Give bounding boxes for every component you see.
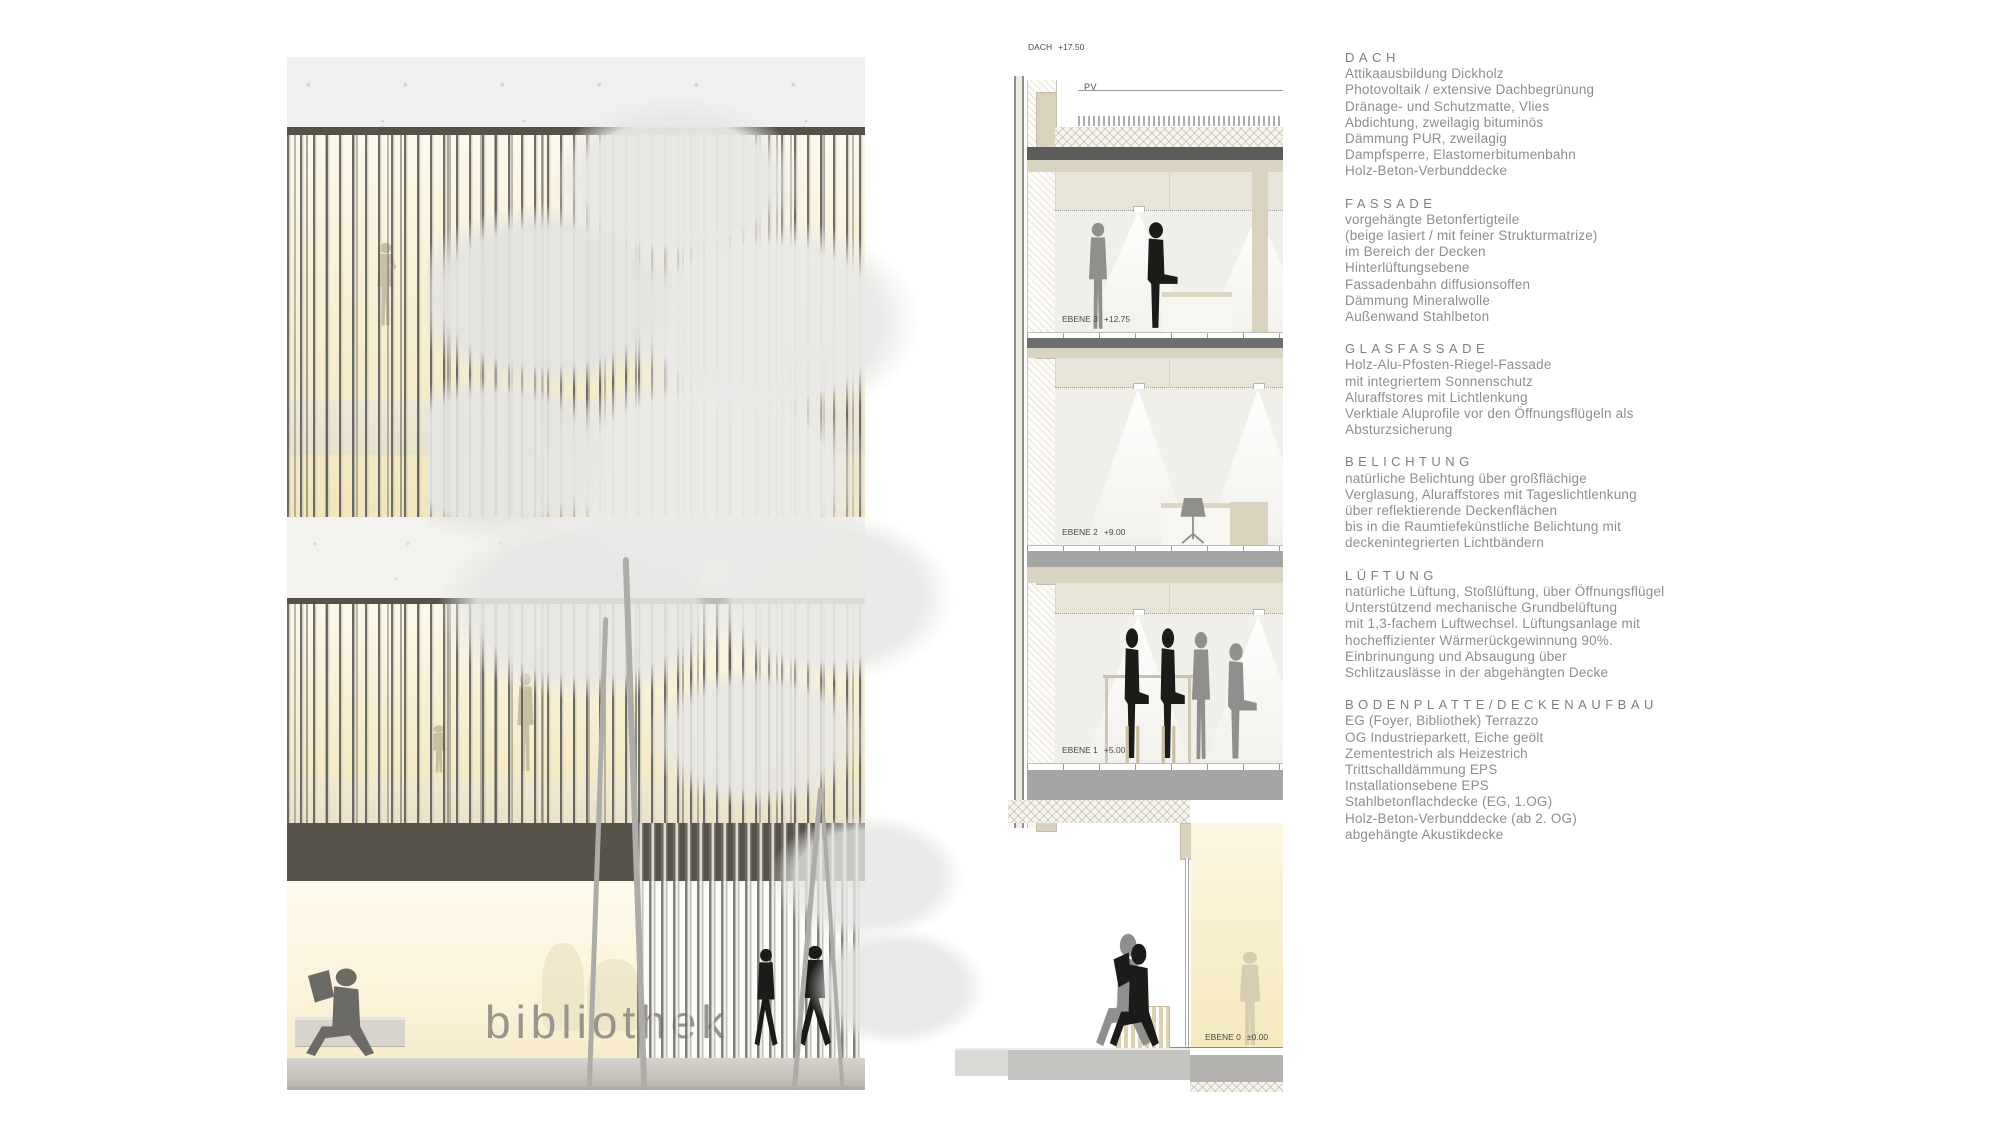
slab-timber-layer [1027,567,1283,583]
floor-finish-strip [1027,763,1283,770]
notes-section-title: BODENPLATTE/DECKENAUFBAU [1345,697,1775,713]
silhouette-figure-reading [1106,942,1164,1050]
foundation-hatch [1190,1082,1283,1092]
ground-slab [1008,1048,1190,1080]
section-room-level3 [1055,172,1283,332]
level-label-ebene1: EBENE 1+5.00 [1062,745,1125,755]
facade-elevation: bibliothek [287,57,865,1090]
room-wall-band [1055,172,1283,210]
level-label-ebene0: EBENE 0±0.00 [1205,1032,1268,1042]
ceiling-light-fixture [1253,609,1265,615]
elevation-upper-glazing [287,127,865,517]
silhouette-figure-walking [790,945,840,1051]
notes-section-title: DACH [1345,50,1775,66]
foundation-slab [1190,1055,1283,1082]
level-elevation: +17.50 [1058,42,1084,52]
roof-timber-layer [1027,160,1283,172]
elevation-concrete-band [287,517,865,598]
notes-section-lines: Holz-Alu-Pfosten-Riegel-Fassade mit inte… [1345,357,1775,438]
pv-leader-line [1078,90,1283,91]
soffit-insulation-hatch [1008,800,1190,823]
notes-section-belichtung: BELICHTUNG natürliche Belichtung über gr… [1345,454,1775,551]
level-label-ebene3: EBENE 3+12.75 [1062,314,1130,324]
cabinet [1230,502,1268,545]
level-name: EBENE 3 [1062,314,1098,324]
notes-section-lines: vorgehängte Betonfertigteile (beige lasi… [1345,212,1775,325]
ground-pavement [955,1048,1010,1076]
elevation-parapet-band [287,57,865,127]
floor-slab [1027,770,1283,800]
elevation-plinth [287,1058,865,1086]
level-label-dach: DACH+17.50 [1028,42,1084,52]
elevation-ground-shadow [287,1086,865,1090]
silhouette-figure-seated [1132,222,1180,332]
silhouette-figure-reading [301,967,381,1059]
ceiling-light-fixture [1133,383,1145,389]
elevation-slab-edge-strip [287,127,865,135]
section-room-level2 [1055,358,1283,545]
level-name: EBENE 1 [1062,745,1098,755]
elevation-slab-edge-strip [287,598,865,604]
notes-section-title: LÜFTUNG [1345,568,1775,584]
level-elevation: ±0.00 [1247,1032,1268,1042]
notes-section-lines: natürliche Lüftung, Stoßlüftung, über Öf… [1345,584,1775,681]
notes-section-fassade: FASSADE vorgehängte Betonfertigteile (be… [1345,196,1775,326]
notes-section-title: GLASFASSADE [1345,341,1775,357]
silhouette-figure-standing [1186,631,1216,763]
elevation-mullion-screen [287,598,865,823]
elevation-mullion-screen [287,127,865,517]
notes-section-dach: DACH Attikaausbildung Dickholz Photovolt… [1345,50,1775,180]
ground-floor-interior [1191,823,1283,1048]
ceiling-line [1055,210,1283,211]
presentation-board: bibliothek DACH+17.50 PV [0,0,2000,1125]
elevation-lower-glazing [287,598,865,823]
notes-section-glasfassade: GLASFASSADE Holz-Alu-Pfosten-Riegel-Fass… [1345,341,1775,438]
level-label-ebene2: EBENE 2+9.00 [1062,527,1125,537]
notes-section-title: BELICHTUNG [1345,454,1775,470]
silhouette-figure-seated [1213,643,1259,763]
level-name: EBENE 0 [1205,1032,1241,1042]
level-elevation: +12.75 [1104,314,1130,324]
notes-section-lines: natürliche Belichtung über großflächige … [1345,471,1775,552]
floor-slab [1027,551,1283,567]
level-elevation: +9.00 [1104,527,1126,537]
interior-column [1252,172,1268,332]
ceiling-light-fixture [1133,609,1145,615]
silhouette-figure-walking [745,948,787,1051]
pv-panel-strip [1078,116,1283,126]
ceiling-line [1055,387,1283,388]
level-elevation: +5.00 [1104,745,1126,755]
room-wall-band [1055,583,1283,613]
slab-timber-layer [1027,348,1283,358]
notes-section-lines: EG (Foyer, Bibliothek) Terrazzo OG Indus… [1345,713,1775,843]
roof-insulation-hatch [1055,127,1283,147]
level-name: DACH [1028,42,1052,52]
pv-label: PV [1084,82,1097,92]
level-name: EBENE 2 [1062,527,1098,537]
section-exterior-wall [1027,80,1057,828]
section-room-level1 [1055,583,1283,763]
ceiling-line [1055,613,1283,614]
building-section: DACH+17.50 PV [1008,40,1283,1102]
notes-section-bodenplatte: BODENPLATTE/DECKENAUFBAU EG (Foyer, Bibl… [1345,697,1775,843]
ground-floor-glazing-line [1185,858,1189,1048]
notes-section-title: FASSADE [1345,196,1775,212]
notes-section-lueftung: LÜFTUNG natürliche Lüftung, Stoßlüftung,… [1345,568,1775,681]
notes-section-lines: Attikaausbildung Dickholz Photovoltaik /… [1345,66,1775,179]
section-facade-mullion [1014,76,1024,828]
ceiling-light-fixture [1133,206,1145,212]
silhouette-figure-on-stool [1147,628,1189,763]
construction-notes: DACH Attikaausbildung Dickholz Photovolt… [1345,50,1775,859]
room-wall-band [1055,358,1283,387]
roof-deck [1027,147,1283,160]
floor-slab [1027,338,1283,348]
silhouette-desk-lamp [1175,498,1211,545]
ceiling-light-fixture [1253,383,1265,389]
